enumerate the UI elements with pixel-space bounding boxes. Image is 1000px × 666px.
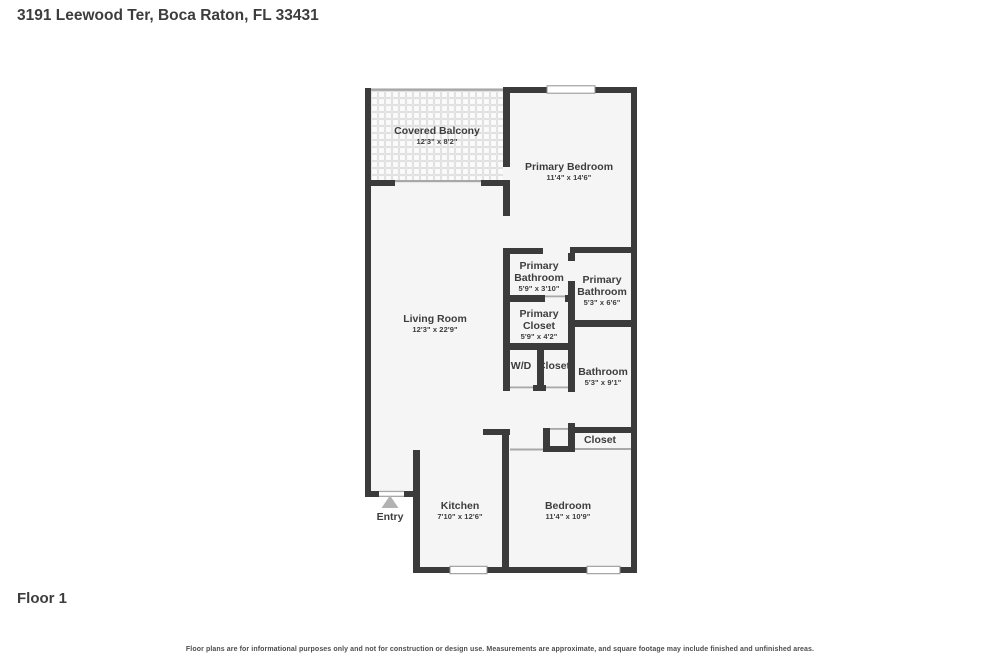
window-kitchen xyxy=(450,566,487,573)
room-dims: 11'4" x 14'6" xyxy=(525,174,613,183)
entry-opening xyxy=(379,491,404,497)
room-dims: 5'3" x 6'6" xyxy=(566,299,638,308)
entry-arrow-icon xyxy=(382,496,399,509)
room-dims: 7'10" x 12'6" xyxy=(437,513,482,522)
room-label-primary-bedroom: Primary Bedroom 11'4" x 14'6" xyxy=(525,161,613,183)
bedroom-door-line xyxy=(510,449,543,451)
window-primary-bedroom xyxy=(547,86,595,93)
room-name: Closet xyxy=(584,434,616,446)
chase-top-line xyxy=(550,428,568,430)
room-label-closet-small: Closet xyxy=(538,360,570,372)
room-name: Living Room xyxy=(403,313,467,325)
room-name: Primary Bathroom xyxy=(566,274,638,298)
room-name: Primary Bedroom xyxy=(525,161,613,173)
window-bedroom xyxy=(587,566,620,573)
room-label-kitchen: Kitchen 7'10" x 12'6" xyxy=(437,500,482,522)
room-label-closet-bedroom: Closet xyxy=(584,434,616,446)
room-label-primary-bathroom-2: Primary Bathroom 5'3" x 6'6" xyxy=(566,274,638,308)
floor-plan-page: 3191 Leewood Ter, Boca Raton, FL 33431 xyxy=(0,0,1000,666)
floor-plan: Covered Balcony 12'3" x 8'2" Primary Bed… xyxy=(0,0,1000,666)
room-name: Bedroom xyxy=(545,500,591,512)
closet-front-line xyxy=(546,387,568,389)
room-name: Entry xyxy=(377,511,404,523)
room-name: Covered Balcony xyxy=(394,125,480,137)
room-label-primary-closet: Primary Closet 5'9" x 4'2" xyxy=(509,308,569,342)
room-name: Closet xyxy=(538,360,570,372)
balcony-slider-line xyxy=(395,180,481,182)
room-name: Primary Bathroom xyxy=(503,260,575,284)
primary-closet-door-line xyxy=(545,296,565,298)
room-dims: 5'9" x 4'2" xyxy=(509,333,569,342)
room-dims: 11'4" x 10'9" xyxy=(545,513,591,522)
room-dims: 5'9" x 3'10" xyxy=(503,285,575,294)
floor-label: Floor 1 xyxy=(17,590,67,607)
room-name: Primary Closet xyxy=(509,308,569,332)
room-label-primary-bathroom-1: Primary Bathroom 5'9" x 3'10" xyxy=(503,260,575,294)
room-label-bedroom: Bedroom 11'4" x 10'9" xyxy=(545,500,591,522)
room-dims: 5'3" x 9'1" xyxy=(578,379,628,388)
balcony-railing-line xyxy=(371,89,503,91)
room-name: W/D xyxy=(511,360,531,372)
room-label-living-room: Living Room 12'3" x 22'9" xyxy=(403,313,467,335)
wd-front-line xyxy=(510,387,533,389)
floor-plan-drawing xyxy=(0,0,1000,666)
room-label-covered-balcony: Covered Balcony 12'3" x 8'2" xyxy=(394,125,480,147)
bedroom-closet-front-line xyxy=(575,448,631,450)
room-name: Bathroom xyxy=(578,366,628,378)
room-dims: 12'3" x 22'9" xyxy=(403,326,467,335)
room-label-entry: Entry xyxy=(377,511,404,523)
room-name: Kitchen xyxy=(437,500,482,512)
disclaimer: Floor plans are for informational purpos… xyxy=(0,646,1000,653)
room-label-wd: W/D xyxy=(511,360,531,372)
room-dims: 12'3" x 8'2" xyxy=(394,138,480,147)
room-label-bathroom: Bathroom 5'3" x 9'1" xyxy=(578,366,628,388)
